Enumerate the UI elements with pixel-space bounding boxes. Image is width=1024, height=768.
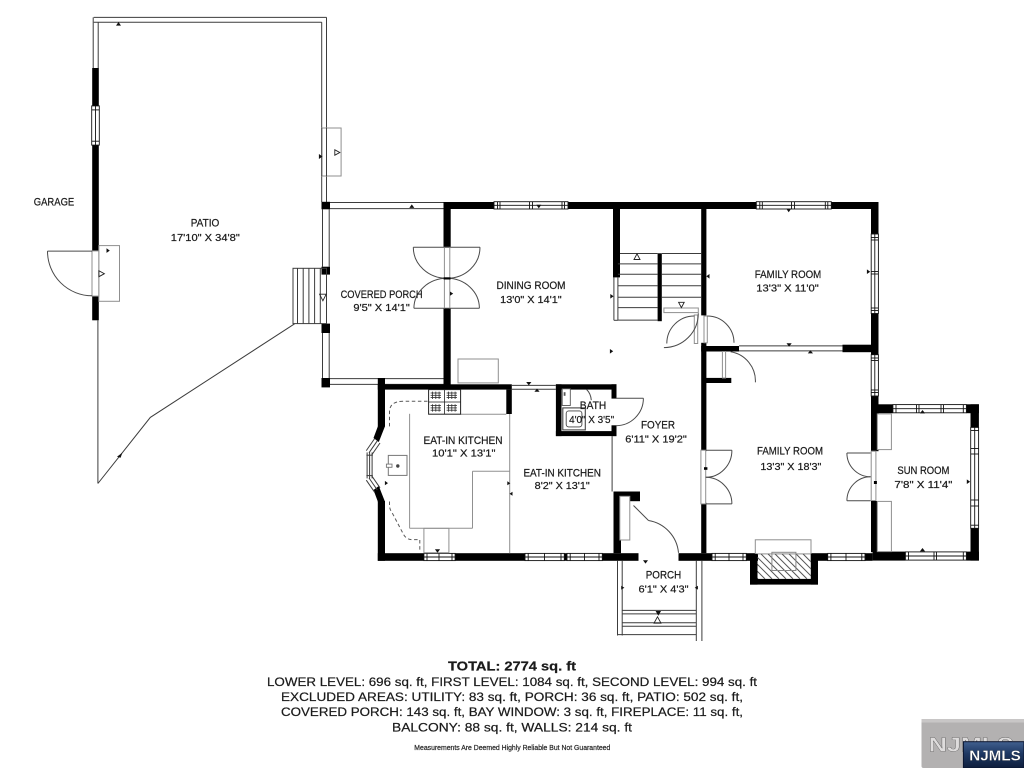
svg-text:EAT-IN KITCHEN: EAT-IN KITCHEN <box>424 435 503 447</box>
svg-text:9'5" X 14'1": 9'5" X 14'1" <box>353 303 410 314</box>
svg-text:GARAGE: GARAGE <box>34 197 75 209</box>
svg-text:4'0" X 3'5": 4'0" X 3'5" <box>569 415 614 426</box>
svg-text:10'1" X 13'1": 10'1" X 13'1" <box>432 449 496 460</box>
svg-text:7'8" X 11'4": 7'8" X 11'4" <box>894 480 952 491</box>
svg-text:PATIO: PATIO <box>191 218 220 230</box>
svg-text:EXCLUDED AREAS: UTILITY: 83 sq: EXCLUDED AREAS: UTILITY: 83 sq. ft, PORC… <box>281 690 743 704</box>
svg-text:NJMLS: NJMLS <box>969 748 1021 764</box>
svg-text:LOWER LEVEL: 696 sq. ft, FIRST: LOWER LEVEL: 696 sq. ft, FIRST LEVEL: 10… <box>267 675 758 689</box>
svg-text:SUN ROOM: SUN ROOM <box>897 465 949 477</box>
svg-text:17'10" X 34'8": 17'10" X 34'8" <box>171 233 240 244</box>
svg-text:13'3" X 11'0": 13'3" X 11'0" <box>756 284 819 295</box>
svg-text:EAT-IN KITCHEN: EAT-IN KITCHEN <box>523 467 601 479</box>
svg-text:FOYER: FOYER <box>641 420 675 432</box>
svg-text:FAMILY ROOM: FAMILY ROOM <box>757 446 823 458</box>
svg-text:Measurements Are Deemed Highly: Measurements Are Deemed Highly Reliable … <box>414 745 610 752</box>
svg-text:13'0" X 14'1": 13'0" X 14'1" <box>500 295 562 306</box>
svg-text:8'2" X 13'1": 8'2" X 13'1" <box>535 481 590 492</box>
svg-text:COVERED PORCH: COVERED PORCH <box>341 289 423 301</box>
svg-text:6'11" X 19'2": 6'11" X 19'2" <box>625 435 687 446</box>
svg-text:FAMILY ROOM: FAMILY ROOM <box>755 269 822 281</box>
svg-text:TOTAL: 2774 sq. ft: TOTAL: 2774 sq. ft <box>448 659 577 673</box>
svg-text:BALCONY: 88 sq. ft, WALLS: 214: BALCONY: 88 sq. ft, WALLS: 214 sq. ft <box>392 720 633 734</box>
svg-text:BATH: BATH <box>580 400 607 412</box>
svg-text:6'1" X 4'3": 6'1" X 4'3" <box>639 584 689 595</box>
svg-text:13'3" X 18'3": 13'3" X 18'3" <box>760 462 821 473</box>
svg-text:DINING ROOM: DINING ROOM <box>497 280 566 292</box>
svg-text:COVERED PORCH: 143 sq. ft, BAY: COVERED PORCH: 143 sq. ft, BAY WINDOW: 3… <box>281 705 743 719</box>
svg-text:PORCH: PORCH <box>646 570 682 582</box>
